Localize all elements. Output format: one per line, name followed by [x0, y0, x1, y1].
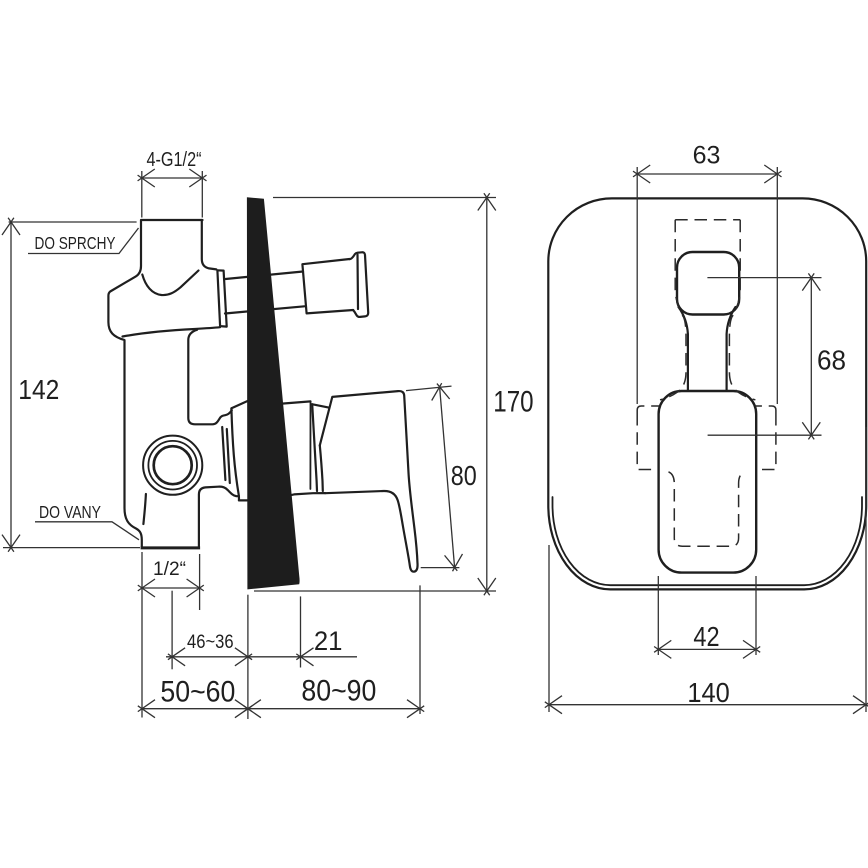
- svg-text:1/2“: 1/2“: [153, 559, 186, 580]
- svg-text:140: 140: [687, 677, 729, 708]
- svg-text:63: 63: [693, 142, 721, 170]
- svg-text:68: 68: [817, 345, 846, 376]
- svg-text:50~60: 50~60: [160, 675, 235, 708]
- svg-text:DO VANY: DO VANY: [39, 502, 101, 522]
- svg-text:42: 42: [693, 621, 719, 652]
- svg-text:80~90: 80~90: [301, 675, 376, 708]
- svg-text:DO SPRCHY: DO SPRCHY: [35, 233, 116, 253]
- svg-text:80: 80: [451, 460, 477, 491]
- svg-text:4-G1/2“: 4-G1/2“: [147, 149, 202, 171]
- svg-text:142: 142: [18, 374, 59, 405]
- svg-text:21: 21: [314, 626, 343, 656]
- svg-text:170: 170: [493, 386, 533, 419]
- svg-text:46~36: 46~36: [187, 631, 234, 653]
